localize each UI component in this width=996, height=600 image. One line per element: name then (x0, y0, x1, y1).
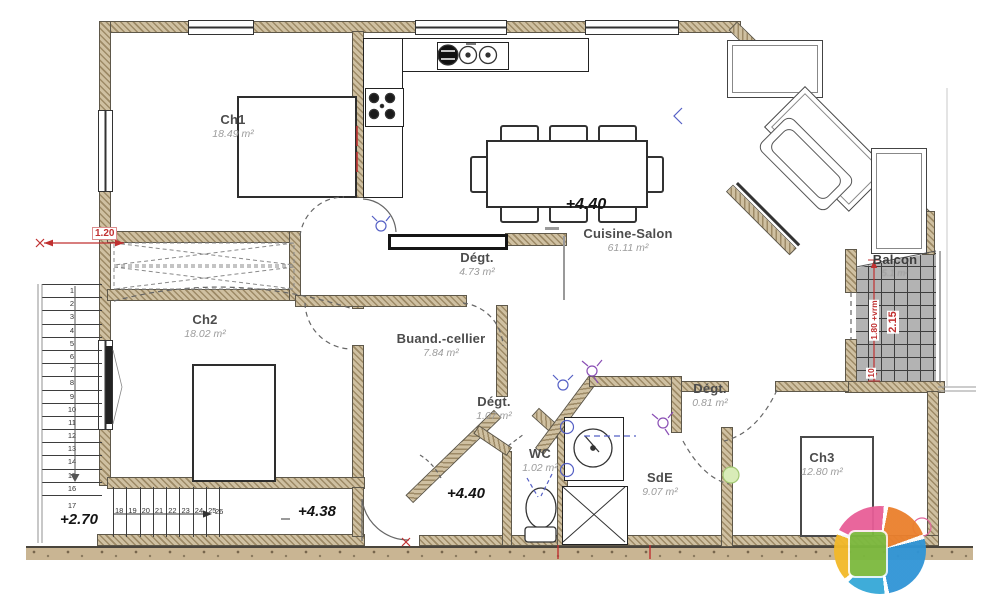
stair-step: 18 (114, 487, 127, 537)
dimension-label-balcony-offset: 10 (866, 367, 876, 378)
room-name: SdE (642, 470, 678, 486)
room-label-sde: SdE 9.07 m² (642, 470, 678, 498)
kitchen-bar-counter (388, 234, 508, 250)
wall-light-icon (658, 418, 668, 428)
room-area: 61.11 m² (583, 242, 672, 255)
room-area: 1.07 m² (476, 410, 512, 423)
kitchen-sink (437, 42, 509, 70)
wall (846, 250, 856, 292)
room-label-ch3: Ch3 12.80 m² (801, 450, 842, 478)
door-arc (305, 303, 351, 349)
stair-step: 12 (42, 430, 102, 443)
window (188, 20, 254, 35)
wall (776, 382, 848, 391)
stair-step: 20 (141, 487, 154, 537)
room-label-ch1: Ch1 18.49 m² (212, 112, 253, 140)
room-area: 4.73 m² (459, 266, 495, 279)
sliding-door-panel (106, 346, 112, 424)
room-label-degagement-3: Dégt. 0.81 m² (692, 381, 728, 409)
washing-machine (564, 417, 624, 481)
room-area: 18.02 m² (184, 328, 225, 341)
wall (252, 22, 415, 32)
wall (846, 382, 944, 392)
room-name: WC (522, 446, 558, 462)
wall-light-icon (558, 380, 568, 390)
shower (562, 486, 628, 545)
wall (108, 232, 298, 242)
window-swing (113, 350, 122, 424)
elevation-tick (545, 227, 559, 230)
stove (365, 88, 404, 127)
door-arc (300, 197, 344, 236)
room-name: Cuisine-Salon (583, 226, 672, 242)
wall (497, 306, 507, 396)
stair-step: 16 (42, 483, 102, 496)
room-area: 12.80 m² (801, 466, 842, 479)
tv-screen (736, 182, 800, 246)
stair-step: 1 (42, 285, 102, 298)
bed-ch2 (192, 364, 276, 482)
stair-step: 8 (42, 377, 102, 390)
stair-step: 19 (127, 487, 140, 537)
stair-step: 14 (42, 456, 102, 469)
brand-logo (834, 506, 926, 594)
room-name: Dégt. (476, 394, 512, 410)
elevation-couloir: +4.38 (298, 503, 336, 520)
room-name: Dégt. (692, 381, 728, 397)
room-label-cuisine-salon: Cuisine-Salon 61.11 m² (583, 226, 672, 254)
stair-step: 5 (42, 338, 102, 351)
stair-step: 21 (154, 487, 167, 537)
wall (353, 488, 363, 536)
wall (506, 234, 566, 245)
staircase-lower-flight: 181920212223242526 (113, 487, 220, 537)
window (98, 110, 113, 192)
room-area: 7.84 m² (397, 347, 486, 360)
door-arc (363, 199, 396, 232)
wall (672, 377, 681, 432)
stair-step: 7 (42, 364, 102, 377)
dimension-label-1-20: 1.20 (92, 227, 117, 240)
stair-step: 3 (42, 311, 102, 324)
wall (846, 340, 856, 386)
dimension-label-balcony-width: 2.15 (887, 310, 899, 333)
stair-step: 6 (42, 351, 102, 364)
room-name: Ch3 (801, 450, 842, 466)
door-arc (362, 499, 409, 540)
floor-plan: 1234567891011121314151617 18192021222324… (0, 0, 996, 600)
room-area: 9.07 m² (642, 486, 678, 499)
room-label-wc: WC 1.02 m² (522, 446, 558, 474)
partition-line (563, 236, 565, 300)
wall (505, 22, 585, 32)
wall (100, 22, 188, 32)
wall (928, 392, 938, 540)
room-name: Ch1 (212, 112, 253, 128)
wall (722, 428, 732, 546)
wall (503, 452, 511, 545)
stair-step: 24 (194, 487, 207, 537)
wall-light-icon (376, 221, 386, 231)
stair-step: 15 (42, 470, 102, 483)
room-label-buanderie: Buand.-cellier 7.84 m² (397, 331, 486, 359)
stair-step: 22 (167, 487, 180, 537)
room-label-ch2: Ch2 18.02 m² (184, 312, 225, 340)
staircase-upper-flight: 1234567891011121314151617 (42, 284, 102, 518)
room-name: Ch2 (184, 312, 225, 328)
elevation-palier: +2.70 (60, 511, 98, 528)
wall (108, 290, 298, 300)
room-label-degagement-2: Dégt. 1.07 m² (476, 394, 512, 422)
ground-strip (26, 546, 973, 560)
stair-step: 13 (42, 443, 102, 456)
wall (475, 427, 511, 455)
elevation-tick (281, 518, 290, 520)
tv-console (727, 186, 795, 254)
room-name: Dégt. (459, 250, 495, 266)
elevation-salon: +4.40 (566, 196, 606, 214)
sofa (871, 148, 927, 254)
stair-step: 4 (42, 325, 102, 338)
room-area: 1.02 m² (522, 462, 558, 475)
wall (290, 232, 300, 300)
elevation-vestibule: +4.40 (447, 485, 485, 502)
room-area: 0.81 m² (692, 397, 728, 410)
bed-ch1 (237, 96, 357, 198)
room-name: Buand.-cellier (397, 331, 486, 347)
stair-step: 26 (215, 507, 223, 516)
wardrobe-boxes (114, 243, 294, 289)
logo-green-panel-icon (850, 532, 886, 576)
window (585, 20, 679, 35)
wall (296, 296, 466, 306)
wall (353, 346, 363, 485)
window (415, 20, 507, 35)
chevron-mark (674, 108, 682, 124)
stair-step: 10 (42, 404, 102, 417)
wall-light-icon (587, 366, 597, 376)
room-name: Balcon (873, 252, 918, 268)
room-label-balcon: Balcon 5.1 m² (873, 252, 918, 279)
stair-step: 23 (180, 487, 193, 537)
stair-step: 9 (42, 391, 102, 404)
door-dash (508, 434, 524, 446)
room-area: 18.49 m² (212, 128, 253, 141)
wall (100, 22, 110, 110)
stair-step: 11 (42, 417, 102, 430)
dimension-label-balcony-rail: 1.80 +vrm (869, 299, 879, 340)
room-label-degagement-1: Dégt. 4.73 m² (459, 250, 495, 278)
stair-step: 2 (42, 298, 102, 311)
wall (590, 377, 680, 386)
toilet-icon (526, 488, 556, 528)
room-area: 5.1 m² (873, 268, 918, 279)
